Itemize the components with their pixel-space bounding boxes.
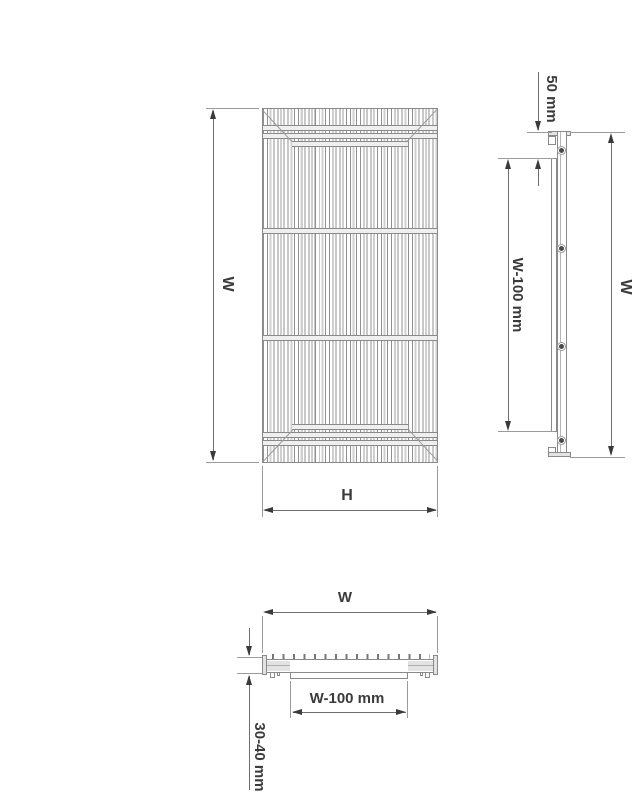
screw-hole: [559, 344, 564, 349]
side-rail-label: W-100 mm: [509, 249, 525, 341]
bottom-channel-floor: [290, 678, 408, 679]
bottom-end-fill-right: [408, 661, 436, 671]
bottom-channel-arrow-right: [396, 709, 406, 715]
side-bar-inner-line: [560, 132, 561, 456]
side-offset-arrow-down: [535, 121, 541, 131]
bottom-w-dim-line: [265, 612, 436, 613]
bottom-thickness-dim-line-lower: [249, 676, 250, 790]
side-w-dim-line: [611, 136, 612, 454]
bottom-thickness-tick-bottom: [237, 673, 262, 674]
bottom-w-arrow-left: [263, 609, 273, 615]
side-bottom-cap: [548, 452, 571, 457]
bottom-foot-left-small: [277, 672, 280, 676]
side-rail-arrow-bottom: [505, 421, 511, 431]
bottom-foot-right: [425, 672, 430, 678]
bottom-end-cap-left: [262, 655, 267, 675]
screw-hole: [559, 148, 564, 153]
bottom-foot-left: [270, 672, 275, 678]
bottom-w-extension-left: [262, 616, 263, 653]
screw-hole: [559, 246, 564, 251]
front-h-dim-line: [265, 510, 436, 511]
side-w-extension-top: [570, 132, 625, 133]
front-w-arrow-bottom: [210, 451, 216, 461]
front-w-arrow-top: [210, 109, 216, 119]
side-offset-label: 50 mm: [543, 71, 559, 127]
side-top-hook: [548, 136, 556, 145]
bottom-thickness-arrow-down: [246, 646, 252, 656]
bottom-inner-line-left: [264, 665, 290, 666]
front-w-extension-bottom: [206, 462, 259, 463]
front-height-label: H: [327, 488, 367, 504]
front-h-arrow-right: [427, 507, 437, 513]
bottom-channel-extension-left: [290, 681, 291, 718]
bottom-end-fill-left: [264, 661, 290, 671]
side-w-extension-bottom: [570, 457, 625, 458]
side-w-arrow-bottom: [608, 446, 614, 456]
bottom-channel-extension-right: [407, 681, 408, 718]
bottom-thickness-label: 30-40 mm: [251, 715, 267, 798]
side-offset-tick-top: [527, 132, 552, 133]
side-main-bar: [557, 131, 567, 457]
side-offset-arrow-up: [535, 159, 541, 169]
bottom-channel-dim-line: [293, 712, 406, 713]
front-h-arrow-left: [263, 507, 273, 513]
front-width-label: W: [219, 269, 235, 299]
screw-hole: [559, 438, 564, 443]
bottom-end-cap-right: [433, 655, 438, 675]
drawing-canvas: W H 50 mm W-100 mm: [0, 0, 640, 798]
bottom-channel-label: W-100 mm: [297, 691, 397, 707]
bottom-w-extension-right: [437, 616, 438, 653]
bottom-w-arrow-right: [427, 609, 437, 615]
side-height-label: W: [617, 272, 633, 302]
bottom-thickness-tick-top: [237, 657, 262, 658]
front-w-dim-line: [213, 111, 214, 460]
front-view-outline: [262, 108, 438, 463]
bottom-foot-right-small: [420, 672, 423, 676]
side-w-arrow-top: [608, 133, 614, 143]
bottom-channel-arrow-left: [292, 709, 302, 715]
bottom-width-label: W: [325, 590, 365, 606]
front-h-extension-right: [437, 466, 438, 517]
side-rail-tick-bottom: [498, 431, 554, 432]
bottom-thickness-arrow-up: [246, 675, 252, 685]
side-mounting-rail: [551, 158, 557, 432]
bottom-inner-line-right: [408, 665, 436, 666]
side-rail-arrow-top: [505, 159, 511, 169]
